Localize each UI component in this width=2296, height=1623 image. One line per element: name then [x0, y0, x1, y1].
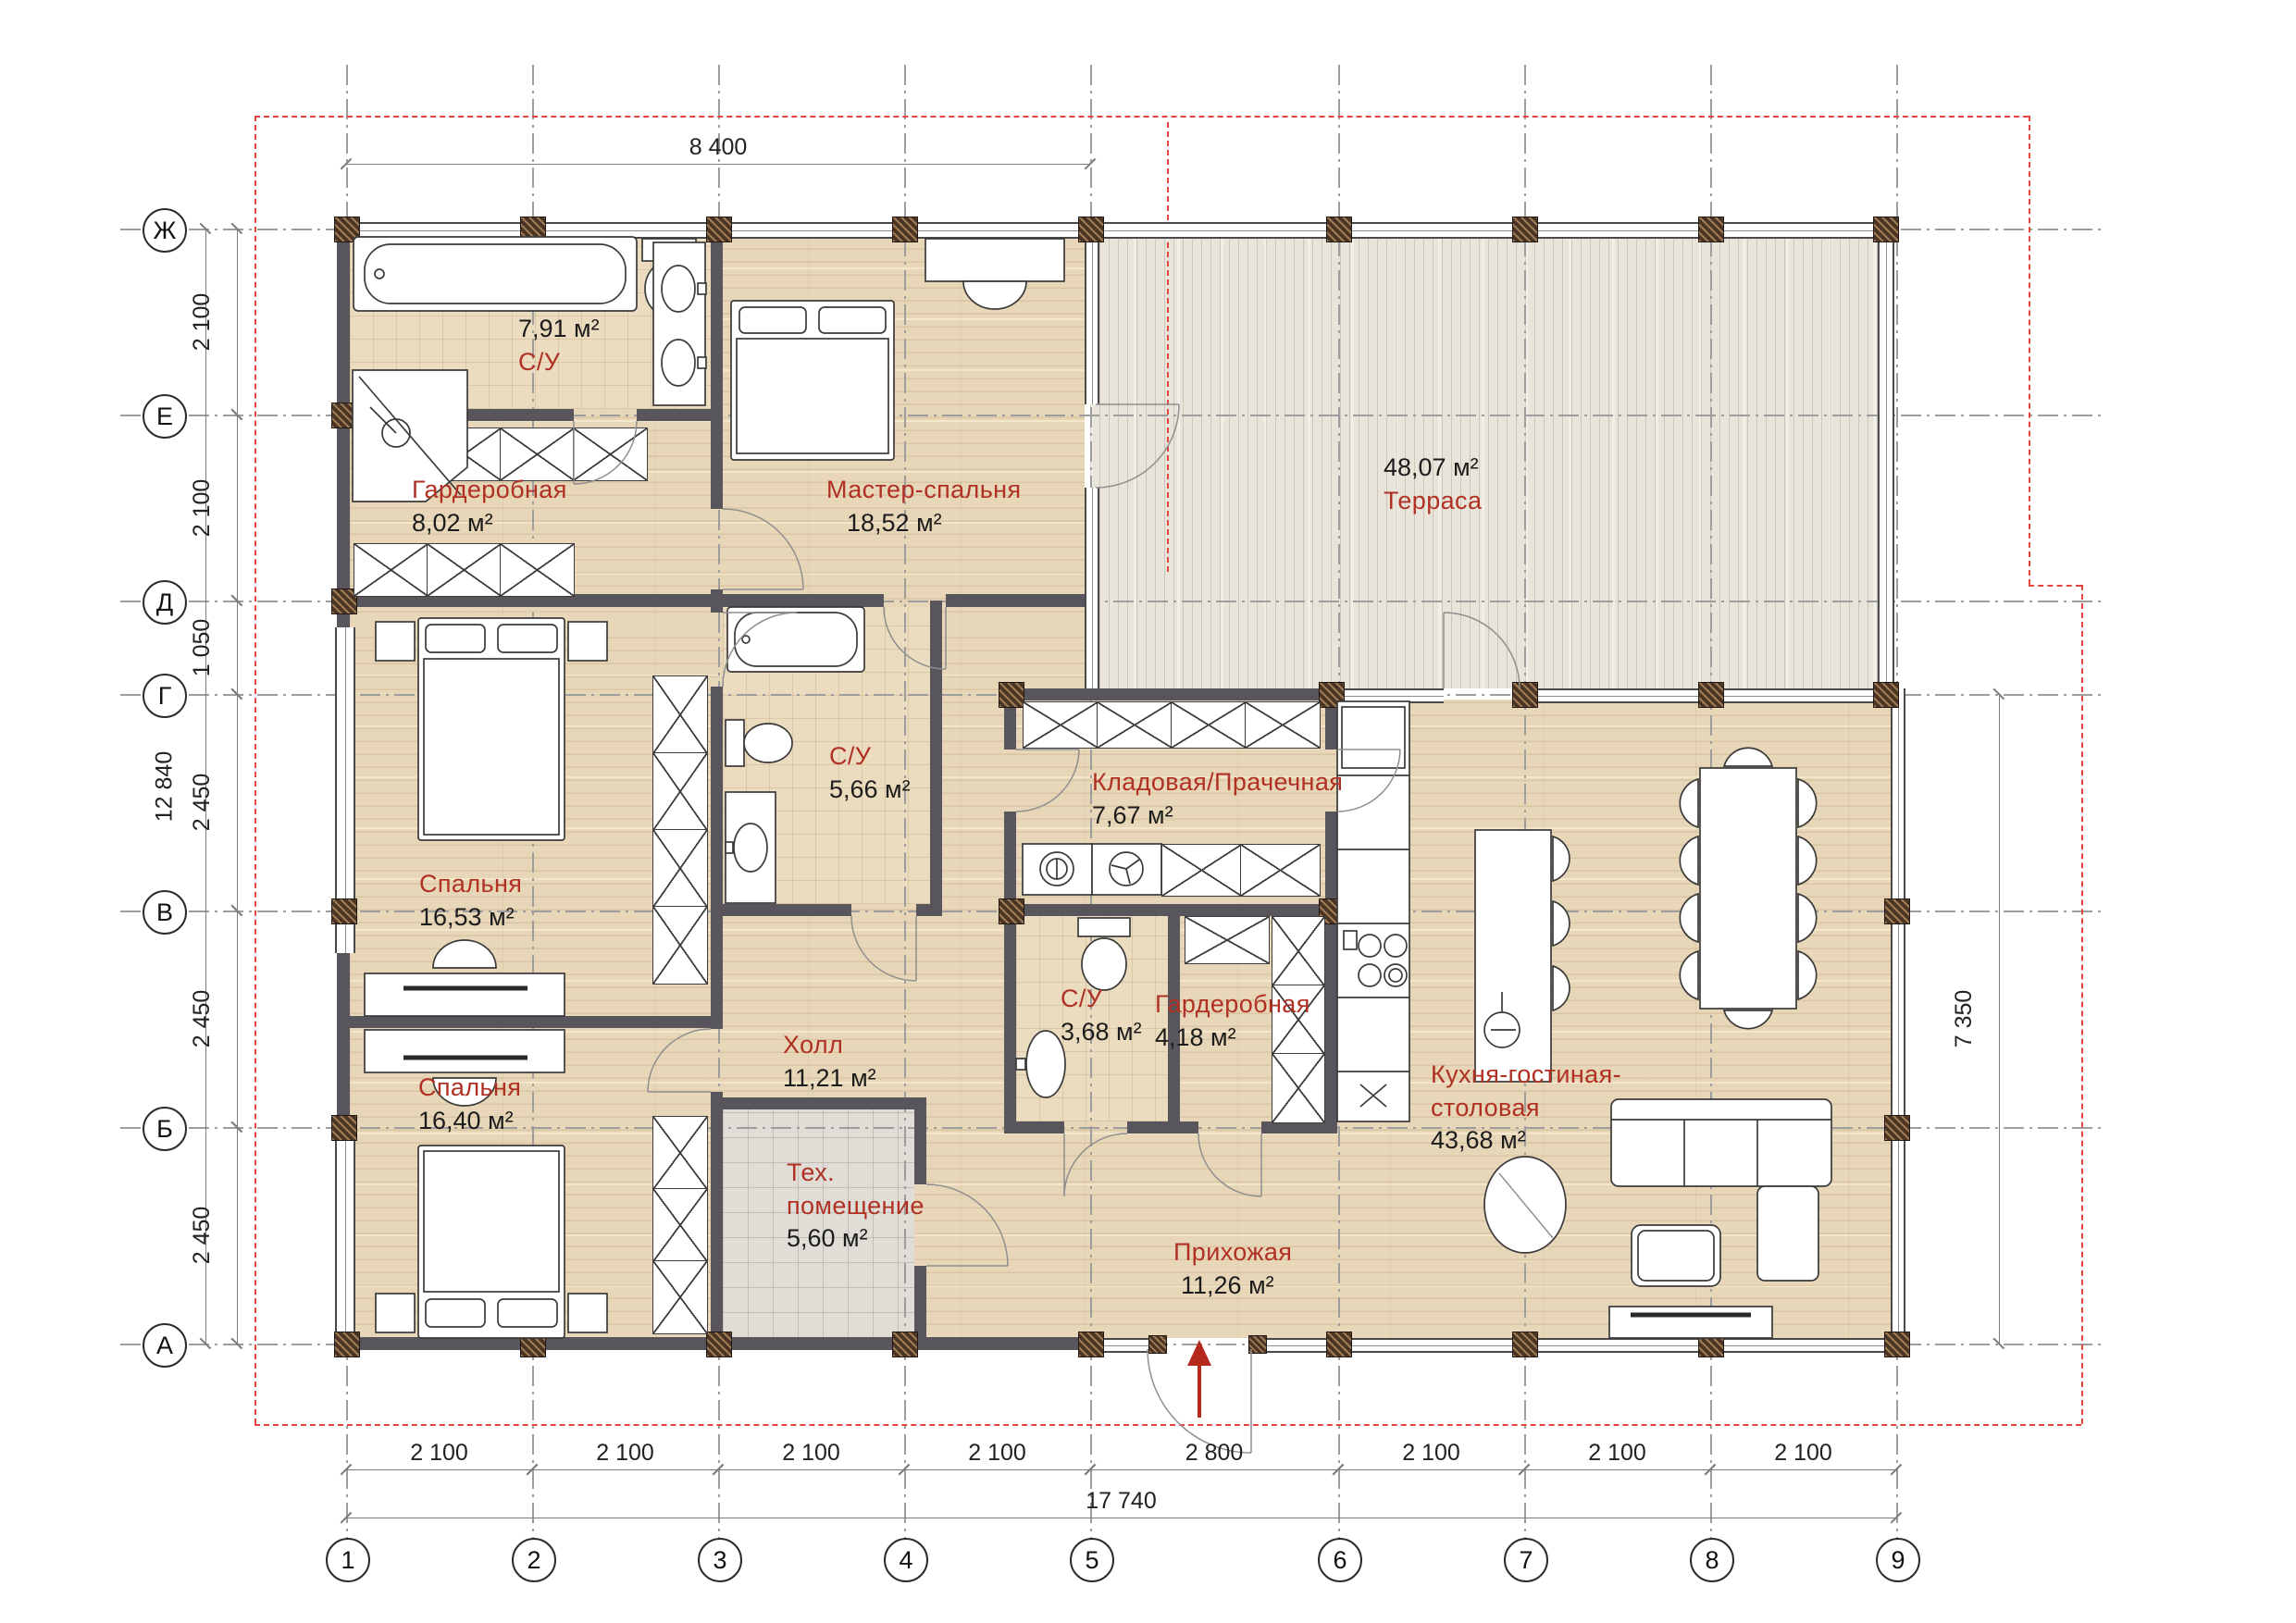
room-label-entry: Прихожая 11,26 м² [1173, 1236, 1292, 1302]
room-area: 7,91 м² [518, 313, 600, 346]
room-area: 48,07 м² [1384, 452, 1482, 485]
room-area: 43,68 м² [1431, 1124, 1621, 1158]
axis-col-3: 3 [698, 1538, 742, 1582]
bedroom1-nightstand-left [376, 622, 415, 661]
room-area: 5,60 м² [787, 1222, 925, 1256]
axis-col-2: 2 [512, 1538, 556, 1582]
room-name: С/У [829, 740, 911, 774]
dim-bottom-7: 2 100 [1524, 1440, 1710, 1470]
axis-row-a: А [143, 1323, 187, 1368]
room-name: Спальня [418, 1072, 521, 1105]
axis-row-g: Г [143, 674, 187, 718]
dining-chair-r3 [1798, 894, 1817, 942]
room-area: 4,18 м² [1155, 1022, 1310, 1055]
dining-chair-r4 [1798, 951, 1817, 999]
dim-bottom-3: 2 100 [718, 1440, 904, 1470]
room-label-terrace: 48,07 м² Терраса [1384, 452, 1482, 517]
room-area: 7,67 м² [1092, 799, 1343, 833]
toilet-3 [1078, 918, 1130, 990]
dining-table [1700, 768, 1796, 1009]
toilet-2 [726, 720, 792, 766]
axis-col-8: 8 [1690, 1538, 1734, 1582]
floor-plan-canvas: 7,91 м² С/У Гардеробная 8,02 м² Мастер-с… [0, 0, 2296, 1623]
room-label-bath2: С/У 5,66 м² [829, 740, 911, 806]
axis-col-6: 6 [1318, 1538, 1362, 1582]
dim-left-1: 2 100 [237, 229, 238, 415]
room-name: Кладовая/Прачечная [1092, 766, 1343, 799]
dining-chair-r1 [1798, 779, 1817, 827]
room-area: 5,66 м² [829, 774, 911, 807]
dim-left-6: 2 450 [237, 1127, 238, 1344]
vanity-sink-2 [726, 792, 776, 903]
room-area: 18,52 м² [847, 507, 1022, 540]
bathtub [354, 237, 637, 311]
axis-col-7: 7 [1504, 1538, 1548, 1582]
room-label-master-bedroom: Мастер-спальня 18,52 м² [826, 474, 1022, 539]
axis-row-b: Б [143, 1107, 187, 1151]
dim-bottom-6: 2 100 [1338, 1440, 1524, 1470]
island-stool-3 [1553, 966, 1570, 1010]
dim-bottom-5: 2 800 [1090, 1440, 1338, 1470]
bedroom1-bed [418, 618, 565, 840]
room-label-master-bath: 7,91 м² С/У [518, 313, 600, 378]
bedroom2-bed [418, 1146, 565, 1338]
coffee-table [1632, 1225, 1720, 1286]
dim-bottom-1: 2 100 [346, 1440, 532, 1470]
laundry-counter [1023, 844, 1161, 895]
sink-3 [1016, 1031, 1065, 1097]
bedroom1-desk [365, 940, 565, 1016]
dining-chair-l3 [1680, 894, 1698, 942]
room-area: 3,68 м² [1061, 1016, 1142, 1049]
dining-chair-l4 [1680, 951, 1698, 999]
dim-left-4: 2 450 [237, 694, 238, 911]
room-label-hall: Холл 11,21 м² [783, 1029, 876, 1095]
room-name2: столовая [1431, 1092, 1621, 1125]
dim-left-2: 2 100 [237, 415, 238, 601]
axis-col-9: 9 [1876, 1538, 1920, 1582]
kitchen-island [1475, 830, 1551, 1082]
room-name: Мастер-спальня [826, 474, 1022, 507]
dining-chair-l2 [1680, 836, 1698, 885]
dim-bottom-2: 2 100 [532, 1440, 718, 1470]
room-name: Терраса [1384, 485, 1482, 518]
axis-col-4: 4 [884, 1538, 928, 1582]
dining-chair-r2 [1798, 836, 1817, 885]
axis-row-v: В [143, 890, 187, 935]
dim-right-7350: 7 350 [1999, 694, 2000, 1344]
room-name: Гардеробная [412, 474, 567, 507]
master-desk [925, 239, 1064, 309]
master-bed [731, 301, 894, 460]
room-area: 11,26 м² [1181, 1270, 1292, 1303]
bedroom2-nightstand-left [376, 1294, 415, 1332]
dim-bottom-total: 17 740 [346, 1488, 1896, 1518]
room-name2: помещение [787, 1190, 925, 1223]
island-stool-1 [1553, 836, 1570, 881]
room-label-storage: Кладовая/Прачечная 7,67 м² [1092, 766, 1343, 832]
dim-left-3: 1 050 [237, 601, 238, 694]
bedroom1-nightstand-right [568, 622, 607, 661]
dim-bottom-4: 2 100 [904, 1440, 1090, 1470]
room-label-bedroom2: Спальня 16,40 м² [418, 1072, 521, 1137]
room-name: Холл [783, 1029, 876, 1062]
dim-bottom-8: 2 100 [1710, 1440, 1896, 1470]
room-label-tech: Тех. помещение 5,60 м² [787, 1157, 925, 1256]
double-vanity-sink [653, 242, 706, 405]
axis-row-e: Е [143, 394, 187, 439]
axis-col-1: 1 [326, 1538, 370, 1582]
room-area: 8,02 м² [412, 507, 567, 540]
bedroom2-nightstand-right [568, 1294, 607, 1332]
room-name: Кухня-гостиная- [1431, 1059, 1621, 1092]
room-label-bath3: С/У 3,68 м² [1061, 983, 1142, 1048]
room-name: Тех. [787, 1157, 925, 1190]
axis-row-d: Д [143, 580, 187, 625]
bathtub-2 [727, 607, 864, 672]
room-name: Гардеробная [1155, 988, 1310, 1022]
room-area: 16,53 м² [419, 901, 522, 935]
axis-col-5: 5 [1070, 1538, 1114, 1582]
room-area: 11,21 м² [783, 1062, 876, 1096]
room-name: С/У [1061, 983, 1142, 1016]
island-stool-2 [1553, 901, 1570, 946]
dining-chair-top [1724, 748, 1772, 766]
axis-row-zh: Ж [143, 208, 187, 253]
room-label-wardrobe4: Гардеробная 4,18 м² [1155, 988, 1310, 1054]
entrance-arrow [1187, 1340, 1211, 1418]
dim-left-5: 2 450 [237, 911, 238, 1127]
dining-chair-bottom [1724, 1010, 1772, 1029]
dining-chair-l1 [1680, 779, 1698, 827]
dim-top-8400: 8 400 [346, 134, 1090, 165]
room-area: 16,40 м² [418, 1105, 521, 1138]
tv-console [1609, 1307, 1772, 1338]
room-label-kitchen: Кухня-гостиная- столовая 43,68 м² [1431, 1059, 1621, 1158]
room-label-bedroom1: Спальня 16,53 м² [419, 868, 522, 934]
room-name: С/У [518, 346, 600, 379]
room-name: Прихожая [1173, 1236, 1292, 1270]
room-name: Спальня [419, 868, 522, 901]
room-label-wardrobe8: Гардеробная 8,02 м² [412, 474, 567, 539]
